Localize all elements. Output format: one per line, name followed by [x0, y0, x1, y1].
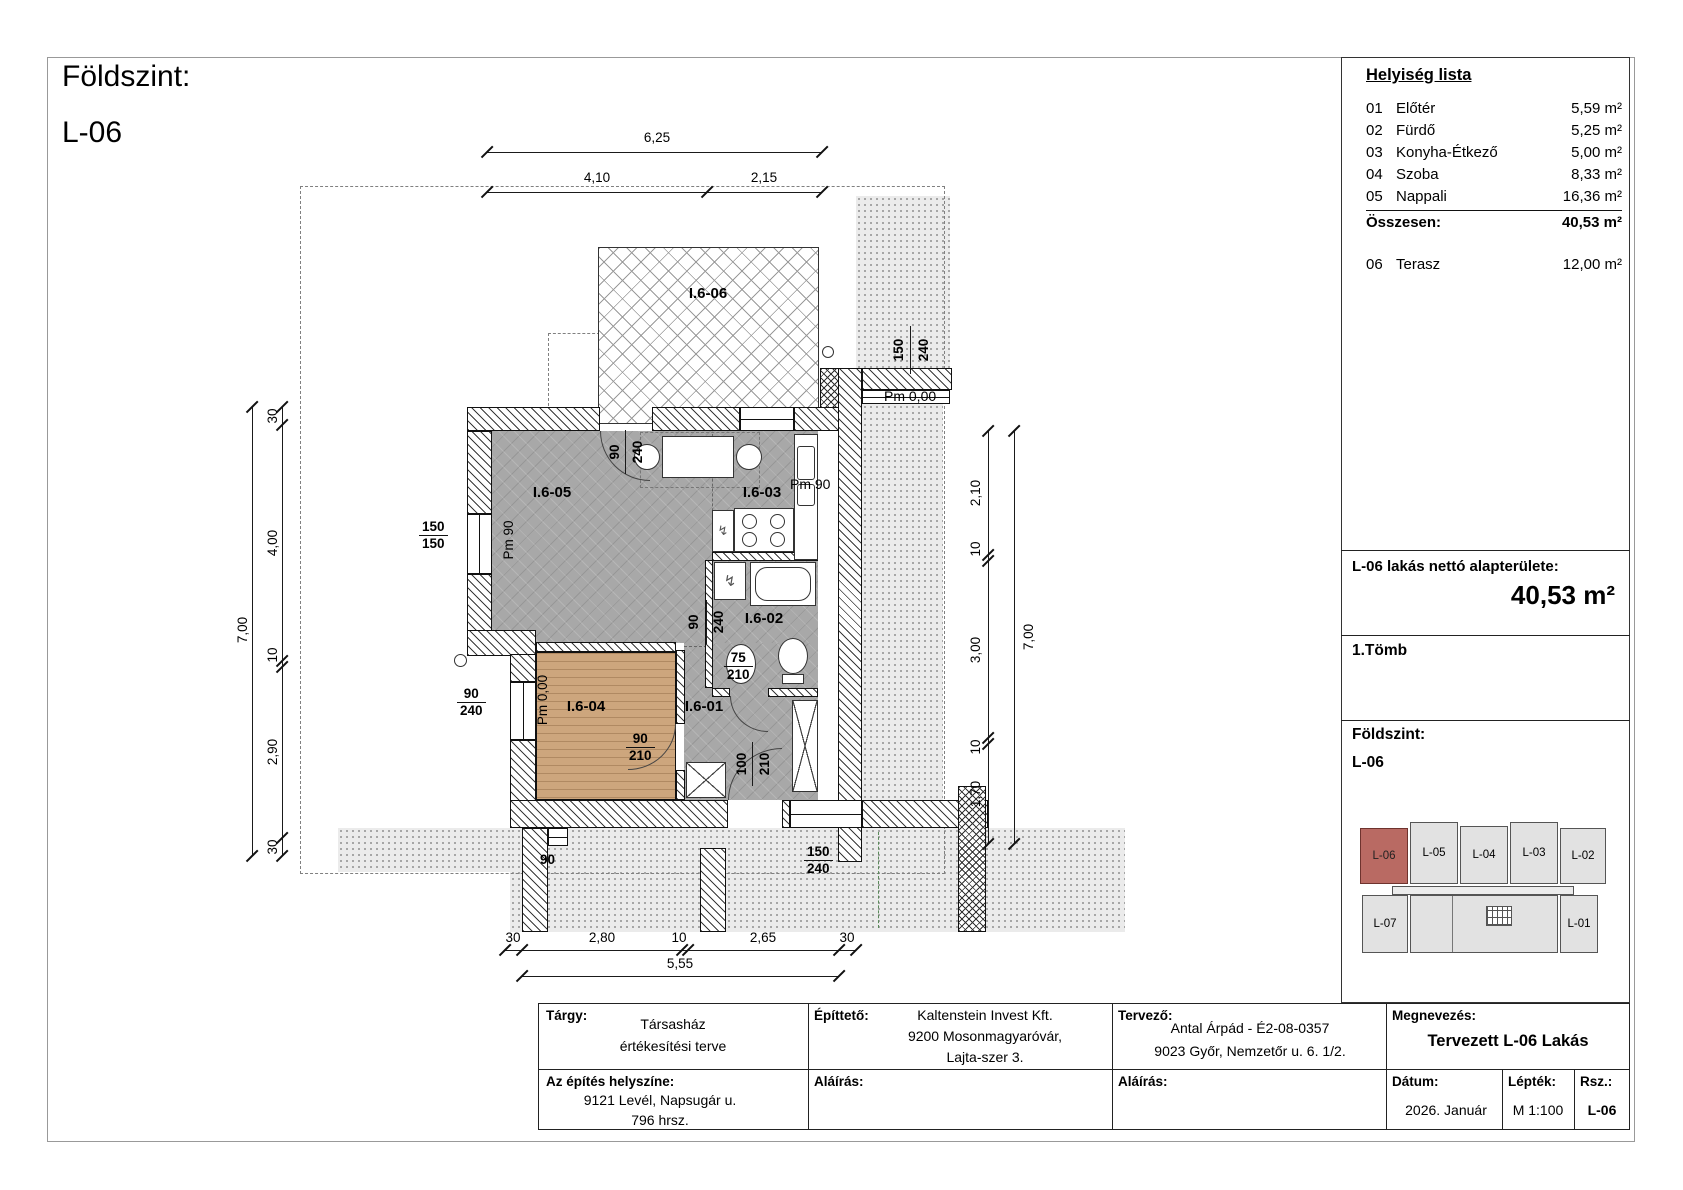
epitteto-label: Építtető: — [814, 1008, 869, 1023]
room-list-heading: Helyiség lista — [1366, 66, 1471, 85]
dim-bot-total: 5,55 — [650, 956, 710, 971]
wall-top-right — [794, 407, 842, 431]
bottom-window-w: 150 — [804, 844, 833, 860]
dim-left-c: 10 — [263, 642, 281, 668]
partition-bath-hall-left — [712, 688, 730, 697]
dim-left-e: 30 — [263, 832, 281, 862]
dim-top-a: 4,10 — [567, 170, 627, 185]
bottom-window-h: 240 — [804, 860, 833, 877]
terrace-area — [598, 247, 819, 424]
keyplan-corridor — [1392, 886, 1574, 895]
rsz-value: L-06 — [1578, 1102, 1626, 1118]
wall-bottom-left — [510, 800, 728, 828]
room-area: 5,59 m² — [1571, 100, 1622, 122]
wall-stub-bottom-2 — [700, 848, 726, 932]
room-total-area: 40,53 m² — [1562, 214, 1622, 238]
dim-left-b: 4,00 — [263, 519, 281, 567]
chair-right — [736, 444, 762, 470]
wardrobe-tall — [792, 700, 818, 792]
floor-section-line1: Földszint: — [1352, 726, 1425, 744]
bedroom-window-w: 90 — [461, 686, 482, 702]
keyplan-unit-l06: L-06 — [1360, 828, 1408, 884]
stove — [734, 508, 794, 552]
drawing-sheet: Földszint: L-06 I.6-06 — [0, 0, 1683, 1190]
room-row-06: 06 Terasz 12,00 m² — [1366, 256, 1622, 278]
wall-right-outer — [838, 368, 862, 862]
tb-v3 — [1386, 1003, 1387, 1130]
burner-1 — [742, 514, 757, 529]
keyplan-unit-l04: L-04 — [1460, 826, 1508, 884]
bathtub-inner — [755, 567, 811, 601]
kitchen-window — [740, 407, 794, 431]
dim-right-c: 3,00 — [966, 628, 984, 672]
small-bottom-window — [548, 828, 568, 846]
dim-top-total: 6,25 — [622, 130, 692, 145]
kitchen-table — [662, 436, 734, 478]
megnevezes-value: Tervezett L-06 Lakás — [1392, 1032, 1624, 1051]
tb-v5 — [1574, 1069, 1575, 1130]
leptek-label: Lépték: — [1508, 1074, 1556, 1089]
tb-v4 — [1502, 1069, 1503, 1130]
dim-right-e: 1,70 — [966, 772, 984, 816]
dim-right-total: 7,00 — [1019, 613, 1037, 661]
wardrobe-wide — [686, 762, 726, 798]
targy-value-1: Társasház — [573, 1016, 773, 1032]
dim-right-b: 10 — [966, 536, 984, 562]
room-label-living: I.6-05 — [502, 483, 602, 501]
room-row-02: 02 Fürdő 5,25 m² — [1366, 122, 1622, 144]
room-row-05: 05 Nappali 16,36 m² — [1366, 188, 1622, 211]
living-level-label: Pm 90 — [499, 513, 517, 567]
room-num: 04 — [1366, 166, 1396, 188]
keyplan-unit-label: L-02 — [1571, 850, 1594, 862]
room-total-row: Összesen: 40,53 m² — [1366, 211, 1622, 238]
burner-2 — [742, 532, 757, 547]
dim-line-left-total — [252, 407, 253, 856]
megnevezes-label: Megnevezés: — [1392, 1008, 1476, 1023]
panel-divider-1 — [1341, 550, 1630, 551]
dim-bot-b: 2,80 — [572, 930, 632, 945]
room-label-bath: I.6-02 — [714, 609, 814, 627]
room-name: Fürdő — [1396, 122, 1571, 144]
dim-right-d: 10 — [966, 734, 984, 760]
topright-window-fracline — [910, 326, 911, 374]
tervezo-value-2: 9023 Győr, Nemzetőr u. 6. 1/2. — [1130, 1043, 1370, 1059]
burner-3 — [770, 514, 785, 529]
partition-living-bedroom — [536, 642, 676, 652]
pass-width: 90 — [684, 607, 702, 637]
wall-top-left — [467, 407, 600, 431]
epitteto-value-3: Lajta-szer 3. — [865, 1049, 1105, 1065]
room-row-03: 03 Konyha-Étkező 5,00 m² — [1366, 144, 1622, 166]
keyplan-unit-l01: L-01 — [1560, 895, 1598, 953]
sheet-title-floor: Földszint: — [62, 60, 190, 94]
panel-divider-2 — [1341, 635, 1630, 636]
room-name: Konyha-Étkező — [1396, 144, 1571, 166]
bedroom-level-label: Pm 0,00 — [533, 668, 551, 732]
room-total-label: Összesen: — [1366, 214, 1562, 238]
dim-bot-e: 30 — [833, 930, 861, 945]
room-label-hall: I.6-01 — [656, 697, 752, 715]
room-area: 12,00 m² — [1563, 256, 1622, 278]
keyplan-unit-l02: L-02 — [1560, 828, 1606, 884]
bedroom-window-size: 90 240 — [457, 686, 486, 719]
living-window — [467, 514, 492, 574]
dim-left-a: 30 — [263, 401, 281, 431]
keyplan-unit-label: L-04 — [1472, 849, 1495, 861]
dim-bot-a: 30 — [499, 930, 527, 945]
room-name: Szoba — [1396, 166, 1571, 188]
helyszin-value-2: 796 hrsz. — [560, 1112, 760, 1128]
wall-top-mid — [652, 407, 740, 431]
tb-h1 — [538, 1069, 1630, 1070]
terrace-door-fracline — [625, 430, 626, 474]
dim-left-total: 7,00 — [233, 606, 251, 654]
wall-bed-left-lower — [510, 740, 536, 802]
bath-door-w: 75 — [728, 650, 749, 666]
room-row-01: 01 Előtér 5,59 m² — [1366, 100, 1622, 122]
room-area: 8,33 m² — [1571, 166, 1622, 188]
toilet-tank — [782, 674, 804, 684]
dim-line-right-chain — [988, 431, 989, 844]
entry-fracline — [752, 742, 753, 786]
topright-window-width: 150 — [889, 332, 907, 368]
epitteto-value-2: 9200 Mosonmagyaróvár, — [865, 1028, 1105, 1044]
keyplan-unit-label: L-05 — [1422, 847, 1445, 859]
room-num: 03 — [1366, 144, 1396, 166]
dim-line-top-total — [487, 152, 822, 153]
topright-window-height: 240 — [914, 332, 932, 368]
washer-icon: ↯ — [714, 562, 746, 600]
rsz-label: Rsz.: — [1580, 1074, 1612, 1089]
datum-label: Dátum: — [1392, 1074, 1439, 1089]
pass-fracline — [706, 600, 707, 644]
room-list: 01 Előtér 5,59 m² 02 Fürdő 5,25 m² 03 Ko… — [1366, 100, 1622, 278]
kitchen-level-label: Pm 90 — [790, 476, 830, 492]
burner-4 — [770, 532, 785, 547]
wall-bottom-mid — [782, 800, 790, 828]
entry-width: 100 — [732, 746, 750, 782]
wall-topright-band — [862, 368, 952, 390]
sheet-title-unit: L-06 — [62, 116, 122, 150]
keyplan-unit-l03: L-03 — [1510, 822, 1558, 884]
wall-corner-crosshatch — [820, 368, 839, 408]
helyszin-label: Az építés helyszíne: — [546, 1074, 674, 1089]
datum-value: 2026. Január — [1394, 1102, 1498, 1118]
partition-bath-hall-right — [768, 688, 818, 697]
dim-bot-c: 10 — [664, 930, 694, 945]
tervezo-value-1: Antal Árpád - É2-08-0357 — [1140, 1020, 1360, 1036]
keyplan-unit-label: L-03 — [1522, 847, 1545, 859]
room-row-04: 04 Szoba 8,33 m² — [1366, 166, 1622, 188]
bottom-window-size: 150 240 — [804, 844, 833, 877]
room-area: 5,25 m² — [1571, 122, 1622, 144]
living-window-h: 150 — [419, 535, 448, 552]
panel-divider-3 — [1341, 720, 1630, 721]
bedroom-door-h: 210 — [626, 747, 655, 764]
keyplan-unit-label: L-06 — [1372, 850, 1395, 862]
dashed-corner-h — [548, 333, 600, 334]
alairas-label-1: Aláírás: — [814, 1074, 864, 1089]
room-name: Nappali — [1396, 188, 1563, 210]
keyplan-unit-middle — [1410, 895, 1558, 953]
leptek-value: M 1:100 — [1505, 1102, 1571, 1118]
bath-door-h: 210 — [724, 666, 753, 683]
room-num: 01 — [1366, 100, 1396, 122]
entry-height: 210 — [755, 746, 773, 782]
net-area-label: L-06 lakás nettó alapterülete: — [1352, 558, 1559, 575]
bedroom-door-size: 90 210 — [626, 731, 655, 764]
alairas-label-2: Aláírás: — [1118, 1074, 1168, 1089]
living-window-w: 150 — [419, 519, 448, 535]
keyplan-unit-l05: L-05 — [1410, 822, 1458, 884]
tb-v1 — [808, 1003, 809, 1130]
dim-bot-d: 2,65 — [733, 930, 793, 945]
keyplan-stairs — [1486, 906, 1512, 926]
pass-height: 240 — [709, 604, 727, 640]
dim-right-a: 2,10 — [966, 471, 984, 515]
floor-section-line2: L-06 — [1352, 754, 1384, 772]
terrace-door-height: 240 — [628, 434, 646, 470]
wall-step — [467, 630, 536, 656]
wall-stub-bottom-1 — [522, 828, 548, 932]
keyplan-unit-l07: L-07 — [1362, 895, 1408, 953]
room-name: Terasz — [1396, 256, 1563, 278]
utility-dashed-green — [878, 832, 879, 928]
room-num: 05 — [1366, 188, 1396, 210]
terrace-door-width: 90 — [605, 437, 623, 467]
room-area: 16,36 m² — [1563, 188, 1622, 210]
bedroom-door-w: 90 — [630, 731, 651, 747]
hall-bottom-window — [790, 800, 862, 828]
block-label: 1.Tömb — [1352, 642, 1407, 660]
kitchen-sink-basin1 — [797, 446, 815, 480]
dim-line-top-chain — [487, 192, 822, 193]
keyplan-unit-label: L-01 — [1567, 918, 1590, 930]
room-area: 5,00 m² — [1571, 144, 1622, 166]
dim-line-right-total — [1014, 431, 1015, 844]
room-label-terrace: I.6-06 — [658, 284, 758, 302]
room-name: Előtér — [1396, 100, 1571, 122]
corner-circle — [822, 346, 834, 358]
toilet-bowl — [778, 638, 808, 674]
dim-left-d: 2,90 — [263, 728, 281, 776]
bedroom-window-h: 240 — [457, 702, 486, 719]
small-window-label: 90 — [540, 852, 555, 867]
keyplan-unit-label: L-07 — [1373, 918, 1396, 930]
keyplan-mid-divider — [1452, 896, 1453, 952]
dim-line-left-chain — [282, 407, 283, 856]
dim-line-bottom-total — [522, 976, 839, 977]
terrain-level-label: Pm 0,00 — [884, 388, 936, 404]
fridge-icon: ↯ — [712, 510, 734, 552]
targy-value-2: értékesítési terve — [573, 1038, 773, 1054]
tb-v2 — [1112, 1003, 1113, 1130]
room-label-bedroom: I.6-04 — [536, 697, 636, 715]
epitteto-value-1: Kaltenstein Invest Kft. — [865, 1007, 1105, 1023]
bath-door-size: 75 210 — [724, 650, 753, 683]
wall-left-mid — [467, 574, 492, 632]
column-circle — [454, 654, 467, 667]
dim-top-b: 2,15 — [734, 170, 794, 185]
helyszin-value-1: 9121 Levél, Napsugár u. — [560, 1092, 760, 1108]
partition-bed-hall-lower — [676, 770, 685, 800]
wall-left-upper — [467, 431, 492, 514]
net-area-value: 40,53 m² — [1380, 580, 1615, 611]
room-num: 02 — [1366, 122, 1396, 144]
room-num: 06 — [1366, 256, 1396, 278]
living-window-size: 150 150 — [419, 519, 448, 552]
